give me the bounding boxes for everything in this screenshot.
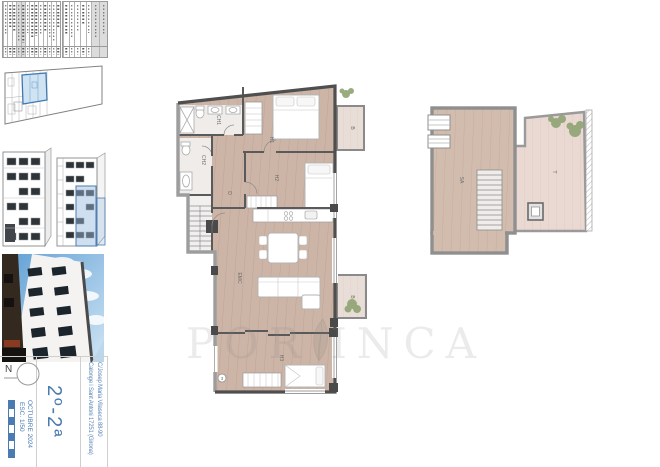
scale-bar [8, 400, 15, 458]
key-plan [2, 58, 110, 136]
wardrobe-h3 [243, 373, 281, 387]
building-photo [2, 254, 104, 362]
main-floor-plan: CH1 CH2 H1 H2 D EMC H3 B B 3 [140, 78, 390, 418]
address-line2: Calonge i Sant Antoni 17251 (Girona) [87, 362, 93, 455]
scale-text: ESC. 1/50 [18, 402, 25, 432]
stair-enclosure [428, 108, 515, 253]
north-label: N [5, 364, 12, 375]
wardrobe-h1 [245, 102, 262, 134]
storefront-sign [4, 340, 20, 347]
address-line1: C/Josep Maria Vilaseca 88-90 [96, 362, 102, 436]
balcony-top [337, 88, 364, 150]
plan-sheet: N ESC. 1/50 OCTUBRE 2024 2º-2ª C/Josep M… [0, 0, 660, 467]
room-label-emc: EMC [236, 272, 242, 284]
room-label-sa: SA [458, 177, 464, 184]
elevation-drawings [2, 146, 108, 252]
room-label-h3: H3 [278, 355, 284, 362]
date-text: OCTUBRE 2024 [26, 400, 33, 448]
skylight [528, 203, 543, 220]
roof-plan: SA T [420, 98, 600, 263]
room-label-ch2: CH2 [200, 155, 206, 165]
area-table-2 [62, 1, 108, 58]
terrace-railing [586, 110, 592, 231]
room-label-t: T [551, 170, 557, 173]
room-label-ch1: CH1 [215, 115, 221, 125]
area-table-1 [2, 1, 61, 58]
bed-single [305, 163, 333, 209]
bed-double [273, 95, 319, 139]
unit-number-marker: 3 [218, 374, 226, 382]
sink-icon [305, 211, 317, 219]
elevation-front [3, 148, 51, 246]
roof-stairs [477, 170, 502, 230]
elevation-rear [57, 153, 105, 246]
wardrobe-h2 [247, 196, 277, 208]
room-label-d: D [226, 191, 232, 195]
plant [340, 88, 355, 98]
north-arrow: N [2, 358, 44, 390]
room-label-h2: H2 [273, 175, 279, 182]
unit-title: 2º-2ª [42, 385, 65, 439]
kitchen-counter [253, 209, 333, 222]
elevation-unit-highlight [76, 186, 96, 246]
room-label-h1: H1 [268, 137, 274, 144]
bed-h3 [285, 365, 325, 387]
key-plan-highlighted-unit [22, 73, 47, 104]
